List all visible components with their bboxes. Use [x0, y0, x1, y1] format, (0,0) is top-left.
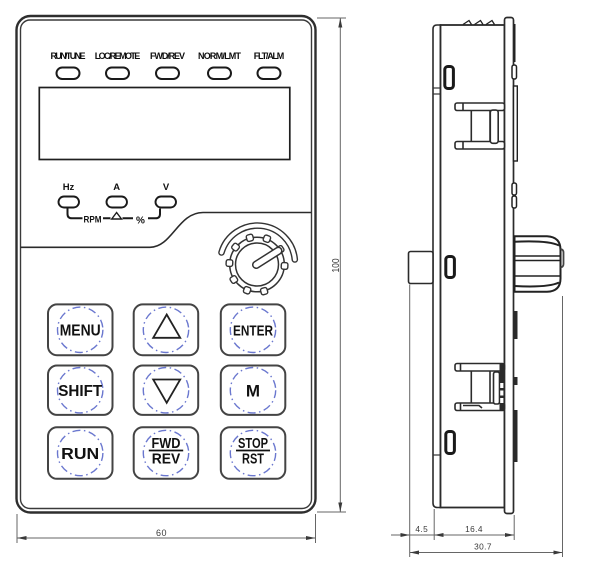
- svg-text:RUN/TUNE: RUN/TUNE: [51, 51, 86, 61]
- svg-text:%: %: [136, 216, 145, 227]
- svg-text:FLT/ALM: FLT/ALM: [254, 51, 285, 61]
- svg-text:Hz: Hz: [63, 182, 75, 193]
- svg-text:FWD: FWD: [152, 435, 181, 452]
- svg-text:16.4: 16.4: [465, 524, 483, 534]
- svg-text:FWD/REV: FWD/REV: [150, 51, 185, 61]
- svg-text:M: M: [246, 382, 260, 401]
- svg-text:A: A: [113, 182, 120, 193]
- svg-text:60: 60: [156, 528, 167, 538]
- svg-text:NORM/LMT: NORM/LMT: [198, 51, 242, 61]
- svg-text:MENU: MENU: [60, 323, 101, 340]
- svg-text:SHIFT: SHIFT: [58, 383, 102, 400]
- svg-text:LOC/REMOTE: LOC/REMOTE: [95, 51, 141, 61]
- svg-text:REV: REV: [152, 451, 181, 468]
- svg-text:30.7: 30.7: [474, 542, 492, 552]
- svg-text:RPM: RPM: [84, 215, 102, 226]
- svg-text:RUN: RUN: [61, 446, 99, 463]
- svg-text:STOP: STOP: [238, 435, 268, 452]
- svg-text:V: V: [163, 182, 170, 193]
- svg-text:100: 100: [331, 258, 342, 272]
- svg-text:ENTER: ENTER: [233, 324, 273, 340]
- svg-text:RST: RST: [242, 451, 264, 468]
- svg-text:4.5: 4.5: [415, 524, 428, 534]
